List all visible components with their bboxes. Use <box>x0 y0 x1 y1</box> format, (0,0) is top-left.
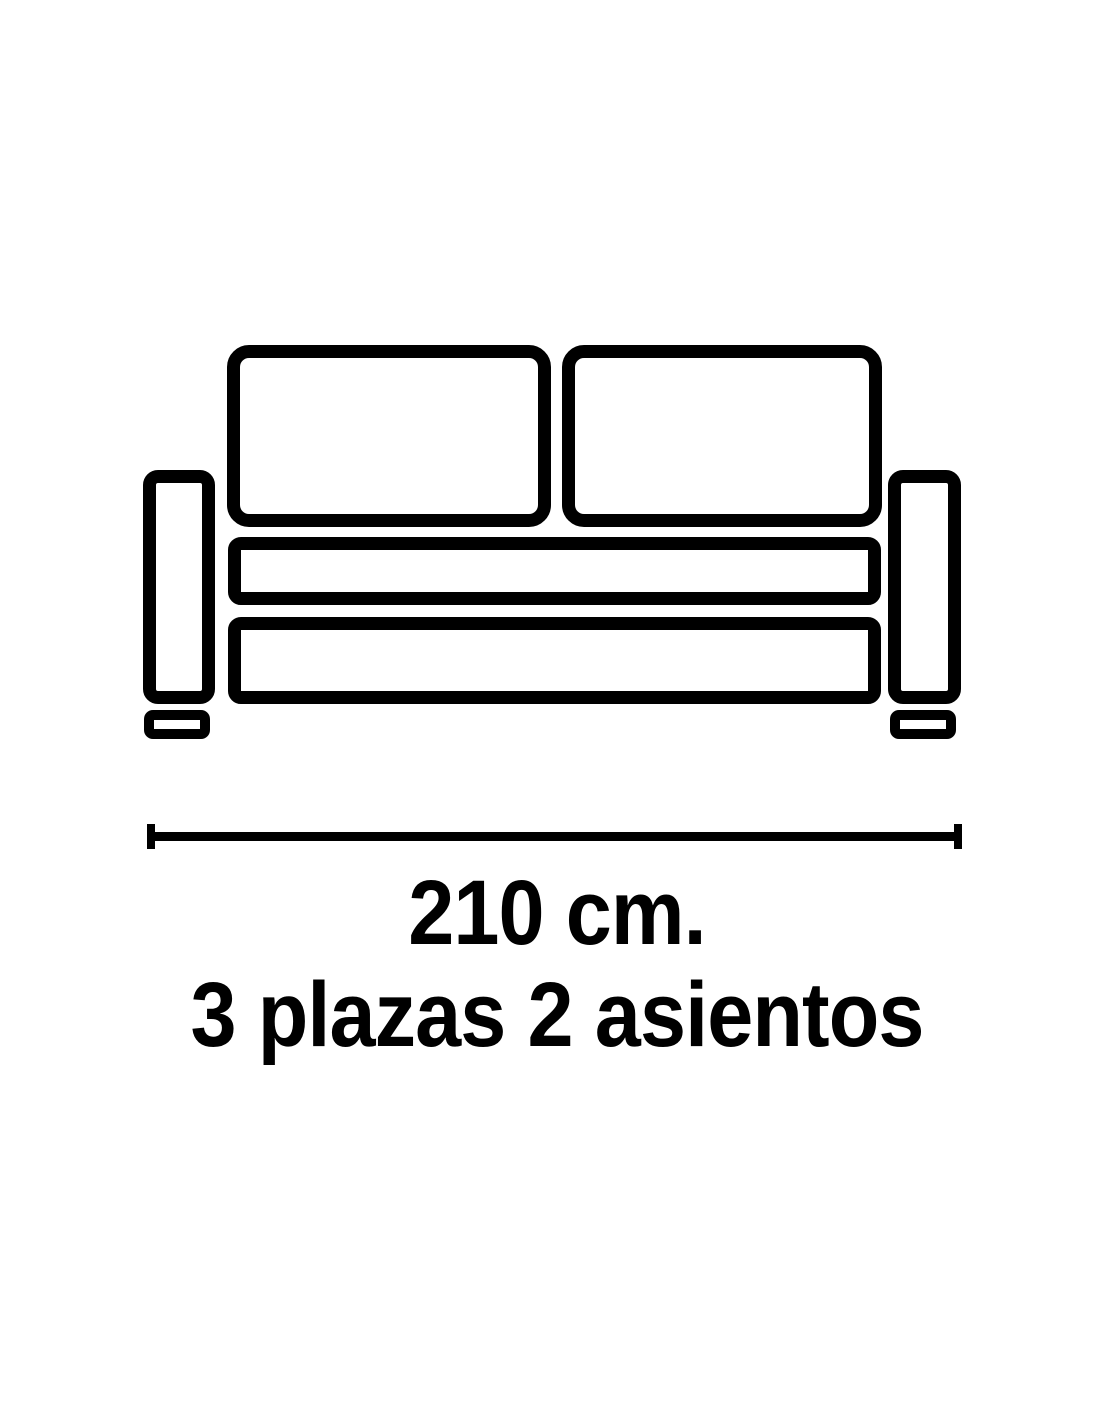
dimension-tick-left <box>147 824 155 849</box>
dimension-tick-right <box>954 824 962 849</box>
armrest-right <box>888 470 961 704</box>
product-dimension-figure: 210 cm. 3 plazas 2 asientos <box>0 0 1100 1422</box>
seat-base <box>228 617 881 704</box>
foot-right <box>890 710 956 739</box>
dimension-line <box>150 832 960 841</box>
caption: 210 cm. 3 plazas 2 asientos <box>190 862 923 1066</box>
armrest-left <box>143 470 215 704</box>
back-cushion-left <box>227 345 551 527</box>
seat-back-rail <box>228 537 881 605</box>
dimension-label: 210 cm. <box>190 862 923 964</box>
foot-left <box>144 710 210 739</box>
seats-label: 3 plazas 2 asientos <box>190 964 923 1066</box>
back-cushion-right <box>562 345 882 527</box>
